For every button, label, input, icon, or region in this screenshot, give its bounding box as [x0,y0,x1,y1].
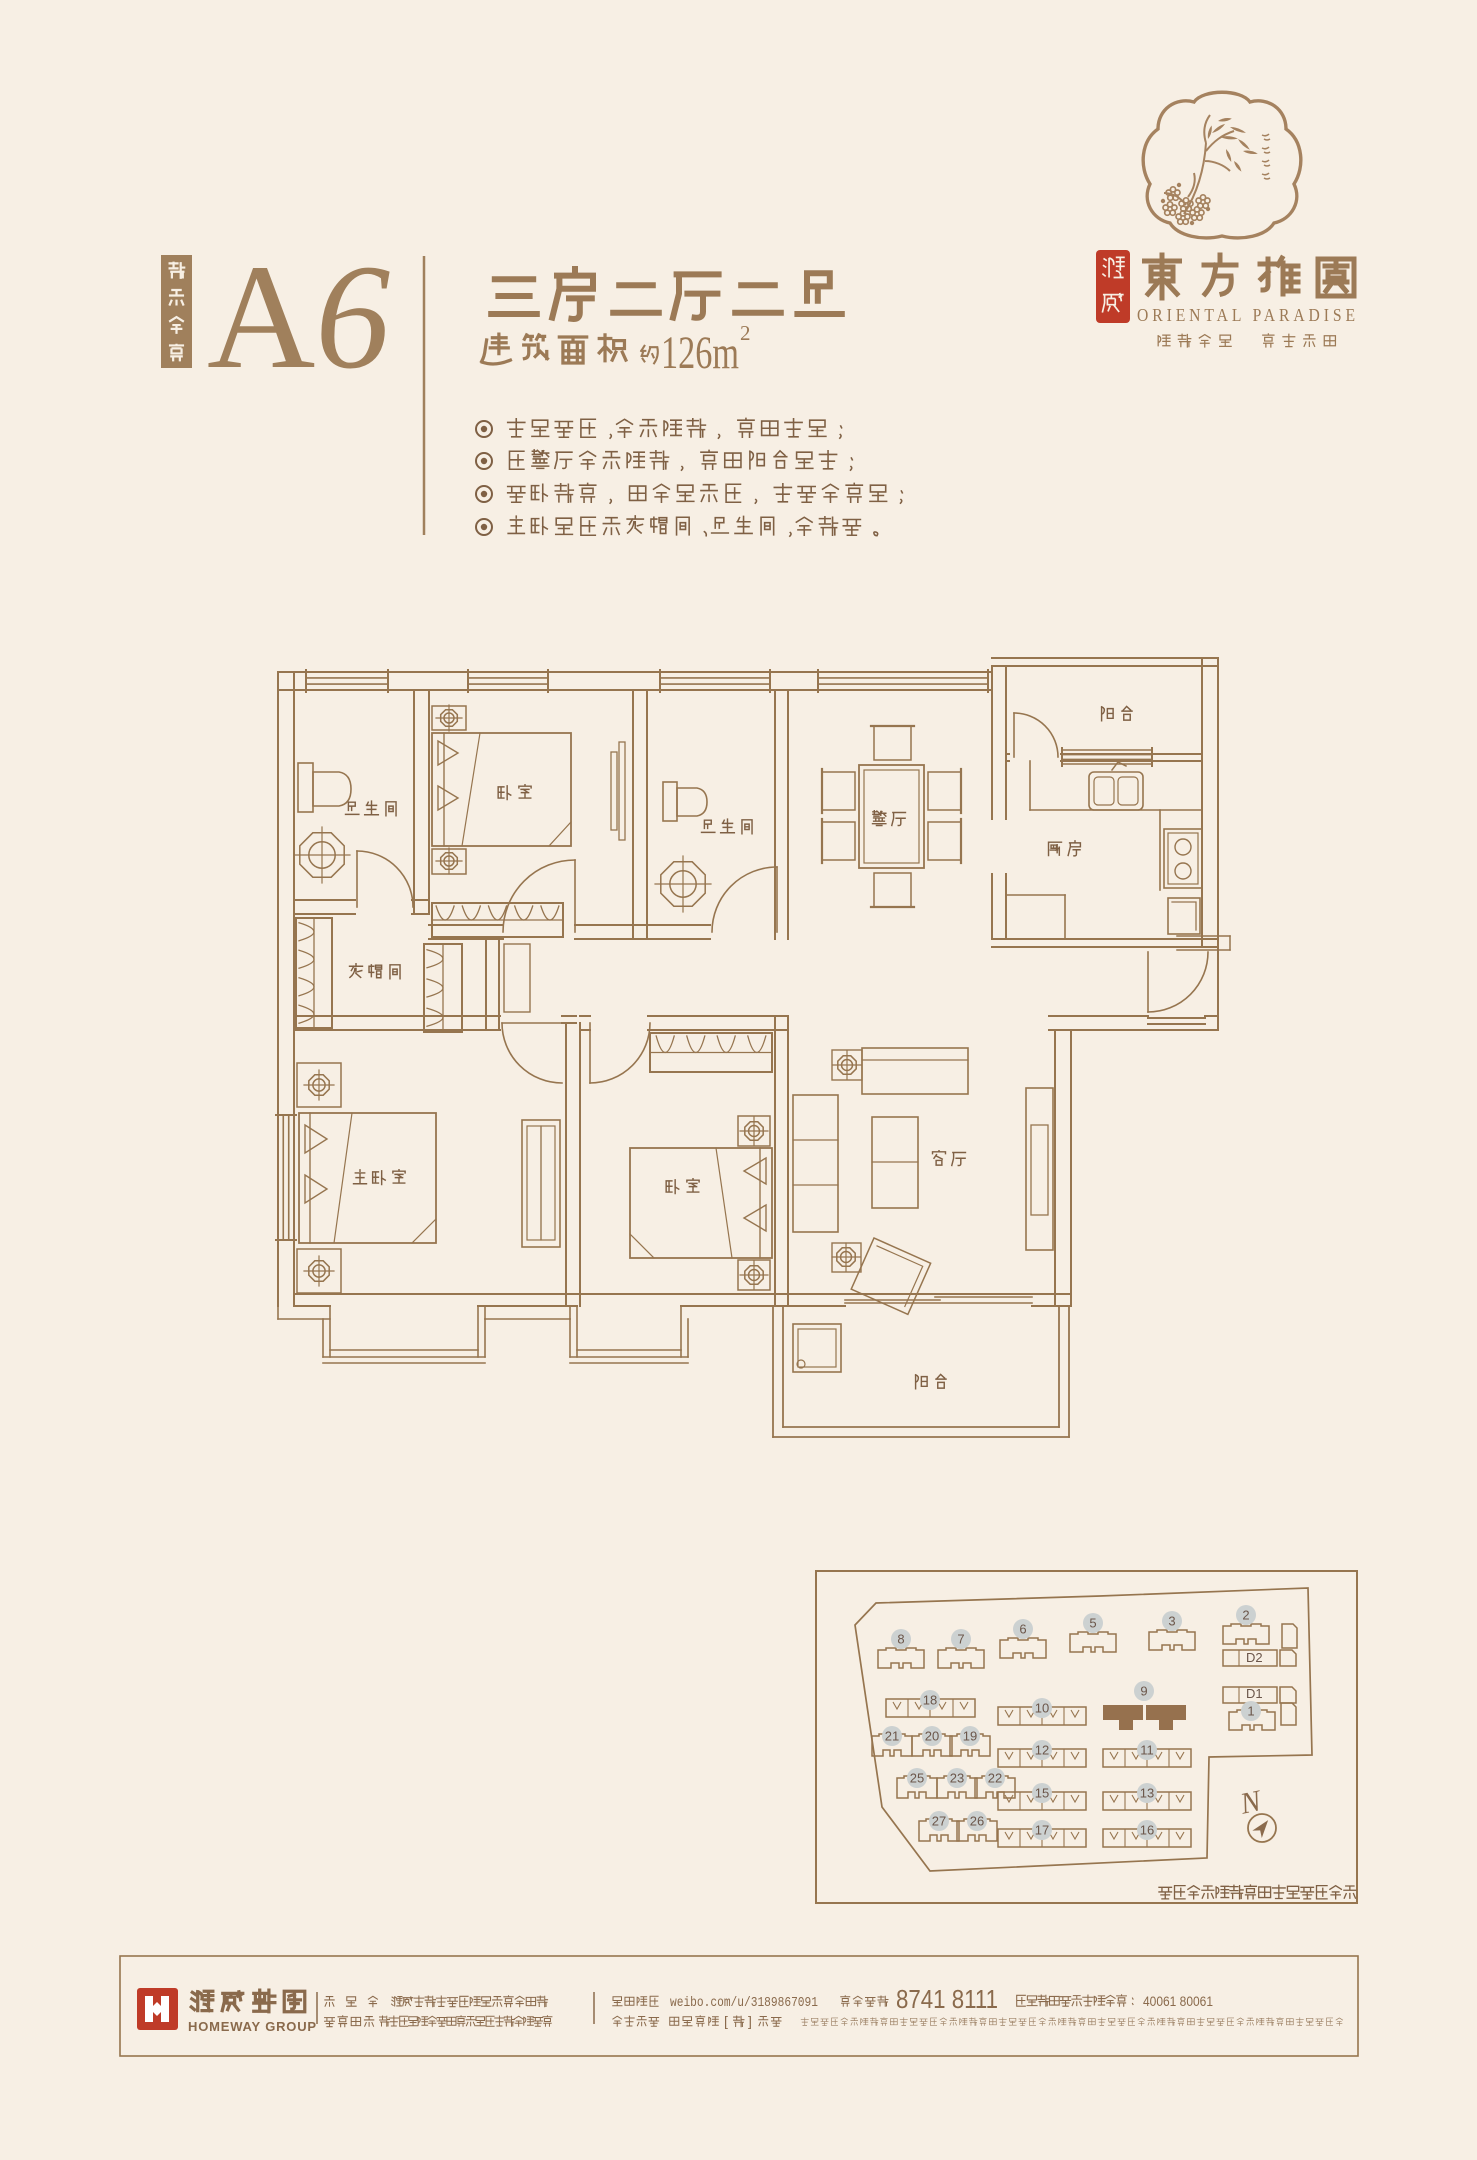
svg-text:2: 2 [740,321,751,345]
svg-text:126m: 126m [661,327,739,379]
svg-text:N: N [1236,1784,1265,1821]
svg-text:25: 25 [910,1771,924,1786]
svg-text:2: 2 [1242,1608,1249,1623]
svg-text:D2: D2 [1246,1650,1263,1665]
svg-text:11: 11 [1140,1743,1154,1758]
svg-text:23: 23 [950,1771,964,1786]
svg-text:13: 13 [1140,1786,1154,1801]
svg-text:15: 15 [1035,1786,1049,1801]
svg-text:17: 17 [1035,1823,1049,1838]
svg-text:weibo.com/u/3189867091: weibo.com/u/3189867091 [670,1995,818,2011]
svg-text:7: 7 [957,1632,964,1647]
svg-text:]: ] [748,2013,752,2029]
svg-text:HOMEWAY GROUP: HOMEWAY GROUP [188,2019,317,2034]
svg-text:9: 9 [1140,1684,1147,1699]
svg-text:D1: D1 [1246,1686,1263,1701]
svg-text:26: 26 [970,1814,984,1829]
svg-text:40061 80061: 40061 80061 [1143,1993,1213,2009]
svg-text:ORIENTAL PARADISE: ORIENTAL PARADISE [1137,305,1359,325]
svg-text:20: 20 [925,1729,939,1744]
svg-text:5: 5 [1089,1616,1096,1631]
svg-text:8741 8111: 8741 8111 [896,1984,998,2014]
svg-text:[: [ [724,2013,728,2029]
svg-text:3: 3 [1168,1614,1175,1629]
svg-text:8: 8 [897,1632,904,1647]
svg-text:18: 18 [923,1693,937,1708]
svg-text:22: 22 [988,1771,1002,1786]
svg-text:27: 27 [932,1814,946,1829]
svg-text:16: 16 [1140,1823,1154,1838]
svg-text:1: 1 [1247,1704,1254,1719]
svg-text:12: 12 [1035,1743,1049,1758]
svg-text:A6: A6 [207,234,390,400]
svg-text:6: 6 [1019,1622,1026,1637]
svg-text:21: 21 [885,1729,899,1744]
svg-text:10: 10 [1035,1701,1049,1716]
svg-text:19: 19 [963,1729,977,1744]
